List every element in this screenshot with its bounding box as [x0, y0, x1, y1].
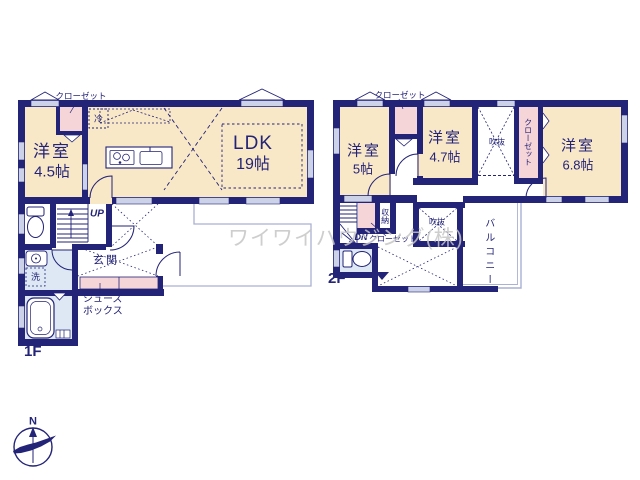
laundry-label: 洗	[31, 272, 40, 282]
western-room-1f-label: 洋室	[33, 142, 71, 162]
shoes-box-label: シューズ ボックス	[83, 294, 123, 317]
western-room-68-label: 洋室	[561, 137, 595, 154]
western-room-5-size: 5帖	[353, 163, 373, 178]
western-room-1f-size: 4.5帖	[34, 163, 70, 180]
entrance-label: 玄関	[93, 255, 119, 268]
western-room-68-size: 6.8帖	[562, 159, 593, 174]
washbasin	[26, 251, 47, 266]
ldk-size: 19帖	[236, 156, 270, 174]
floor2-label: 2F	[328, 270, 346, 287]
watermark-text: ワイワイハウジング(株)	[228, 227, 464, 251]
closet-label-1f: クローゼット	[55, 92, 106, 102]
refrigerator-label: 冷	[94, 113, 103, 123]
void-lower-label: 吹抜	[429, 217, 445, 226]
stairs-up-label: UP	[90, 208, 104, 220]
ldk-label: LDK	[233, 133, 273, 155]
compass-north-label: N	[29, 416, 37, 429]
balcony-label: バルコニー	[482, 218, 494, 288]
floor1-stairs	[57, 204, 88, 242]
kitchen-counter	[106, 147, 172, 168]
western-room-47-size: 4.7帖	[429, 151, 460, 166]
toilet-2f	[343, 251, 371, 267]
compass-icon	[13, 427, 56, 466]
western-room-47-label: 洋室	[428, 129, 462, 146]
western-room-5-label: 洋室	[347, 142, 381, 159]
storage-label: 収納	[380, 208, 389, 224]
toilet-1f	[27, 207, 44, 238]
floor1-label: 1F	[24, 343, 42, 360]
shoe-box	[80, 277, 158, 289]
floorplan-page: { "watermark": "ワイワイハウジング(株)", "compass"…	[0, 0, 640, 480]
closet-top-label-2f: クローゼット	[374, 91, 425, 101]
closet-wall-label-2f: クローゼット	[523, 118, 532, 166]
void-upper-label: 吹抜	[489, 137, 505, 146]
